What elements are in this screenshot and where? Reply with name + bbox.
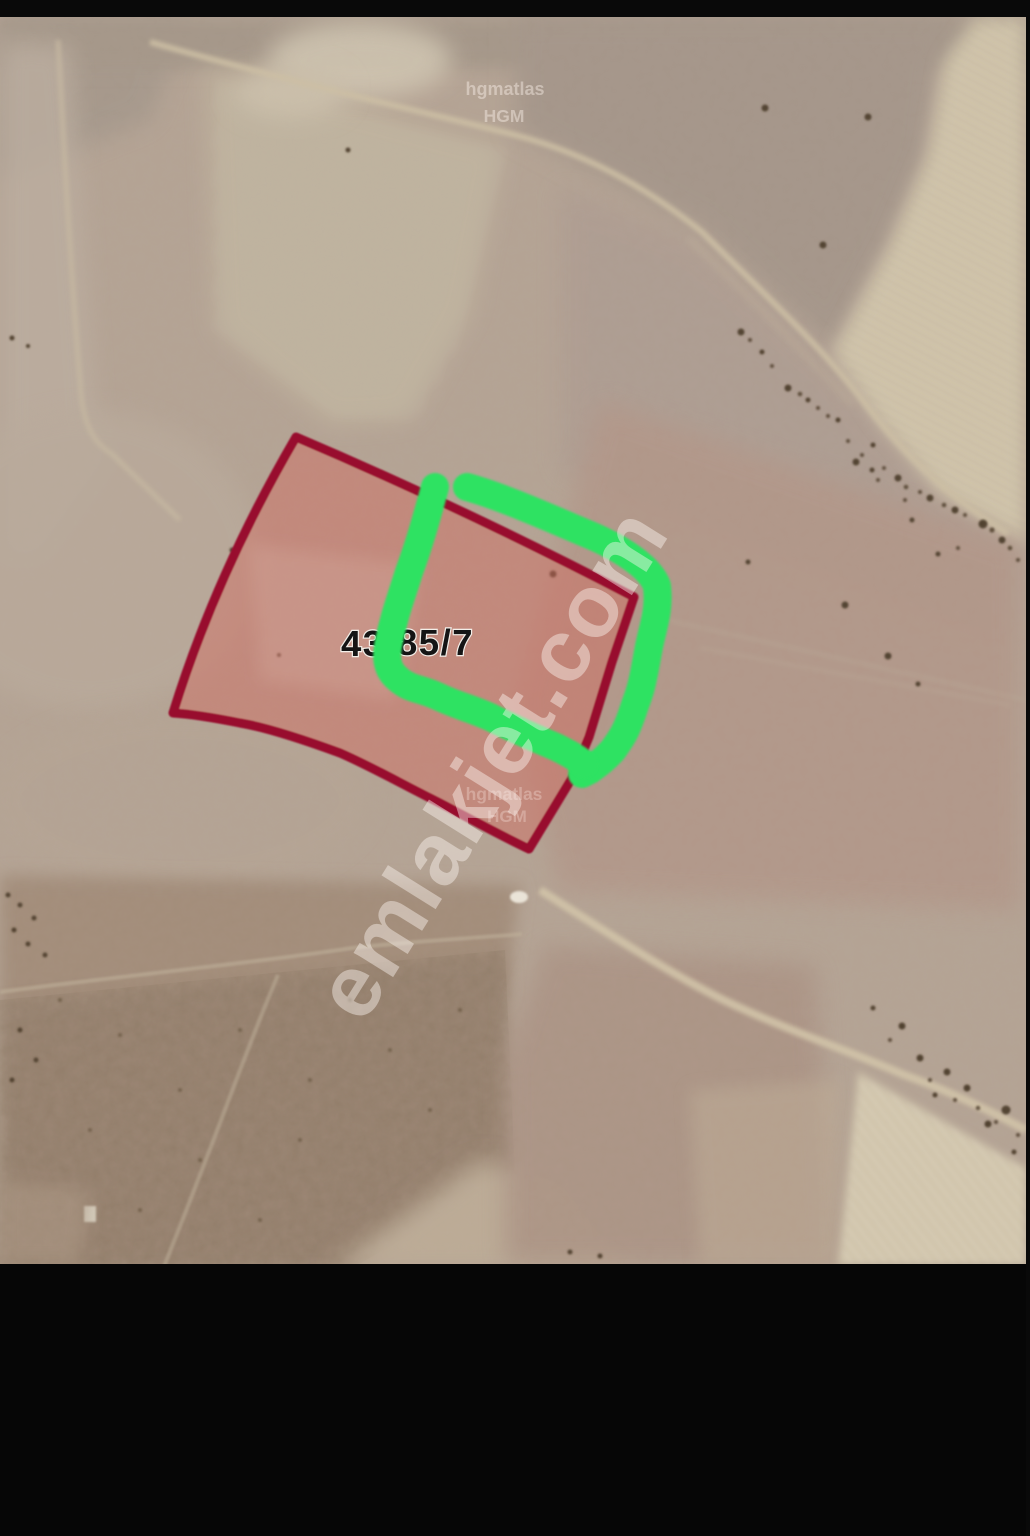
svg-text:hgmatlas: hgmatlas <box>465 79 544 99</box>
svg-text:85/7: 85/7 <box>397 622 474 663</box>
svg-text:HGM: HGM <box>484 106 525 126</box>
